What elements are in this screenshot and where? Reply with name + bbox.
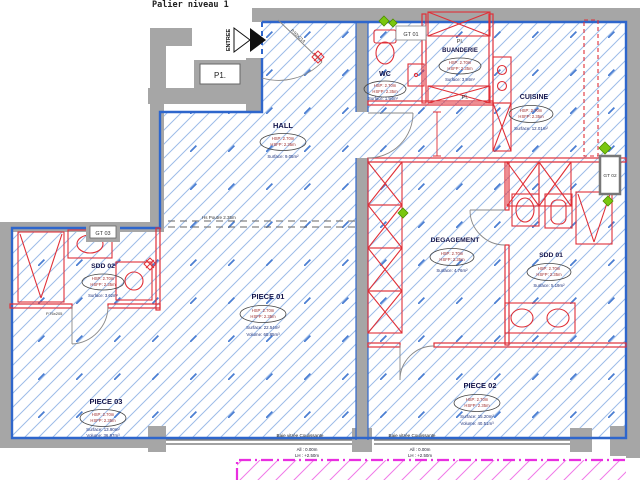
room-name: CUISINE xyxy=(520,94,549,101)
stair-p1-box: P1. xyxy=(200,64,240,84)
window-left-lh: LH : +2.50m xyxy=(295,453,319,458)
floor-plan-sheet: P1. xyxy=(0,0,640,480)
gt01-label: GT 01 xyxy=(403,32,418,38)
room-name: PIECE 03 xyxy=(90,397,123,406)
room-hsfp: HSFP: 2.35m xyxy=(464,403,490,408)
floor-plan-canvas[interactable]: P1. xyxy=(0,0,640,480)
room-surface: Surface: 12.01m² xyxy=(514,126,548,131)
room-surface: Surface: 3.94m² xyxy=(445,77,475,82)
room-surface: Surface: 9.05m² xyxy=(267,154,299,159)
room-name: HALL xyxy=(273,121,293,130)
p1-label: P1. xyxy=(214,71,226,80)
room-hsp: HSP: 2.70m xyxy=(538,266,561,271)
room-surface: Surface: 5.19m² xyxy=(533,283,565,288)
page-title: Palier niveau 1 xyxy=(152,0,229,10)
room-volume: Volume: 36.97m³ xyxy=(86,433,120,438)
room-volume: Volume: 60.85m³ xyxy=(246,332,280,337)
window-left-all: All : 0.00m xyxy=(297,447,318,452)
room-name: DEGAGEMENT xyxy=(431,237,481,244)
room-hsp: HSP: 2.70m xyxy=(252,308,275,313)
room-hsp: HSP: 2.70m xyxy=(92,276,115,281)
balcony xyxy=(237,460,626,480)
pl-label-bottom: Pl. xyxy=(462,95,469,101)
entree-label: ENTREE xyxy=(226,29,232,52)
room-hsfp: HSFP: 2.35m xyxy=(90,418,116,423)
room-hsp: HSP: 2.70m xyxy=(466,397,489,402)
pl-label-top: Pl. xyxy=(457,39,464,45)
room-name: BUANDERIE xyxy=(442,48,478,54)
room-hsp: HSP: 2.70m xyxy=(449,60,472,65)
window-left-label: Baie vitrée Coulissante xyxy=(277,433,324,438)
window-right-all: All : 0.00m xyxy=(410,447,431,452)
room-hsfp: HSFP: 2.35m xyxy=(518,114,544,119)
room-hsfp: HSFP: 2.35m xyxy=(250,314,276,319)
room-name: WC xyxy=(379,71,391,78)
room-name: SDD 01 xyxy=(539,252,563,259)
room-surface: Surface: 4.76m² xyxy=(436,268,468,273)
gt03-label: GT 03 xyxy=(95,231,110,237)
beam-label: Hs Poutre 2.35m xyxy=(202,215,236,220)
room-surface: Surface: 13.90m² xyxy=(86,427,120,432)
window-right-label: Baie vitrée Coulissante xyxy=(389,433,436,438)
room-surface: Surface: 1.94m² xyxy=(368,96,398,101)
room-hsfp: HSFP: 2.35m xyxy=(270,142,296,147)
room-volume: Volume: 40.51m³ xyxy=(460,421,494,426)
room-name: SDD 02 xyxy=(91,263,115,270)
room-hsfp: HSFP: 2.35m xyxy=(536,272,562,277)
gt02-label: GT 02 xyxy=(603,173,617,179)
room-hsfp: HSFP: 2.35m xyxy=(372,89,398,94)
room-name: PIECE 02 xyxy=(464,381,497,390)
sdd02-door-size: P.76x205 xyxy=(46,311,63,316)
window-right-lh: LH : +2.50m xyxy=(408,453,432,458)
room-hsp: HSP: 2.70m xyxy=(374,83,397,88)
room-name: PIECE 01 xyxy=(252,292,285,301)
room-hsp: HSP: 2.70m xyxy=(272,136,295,141)
room-hsfp: HSFP: 2.35m xyxy=(447,66,473,71)
room-surface: Surface: 22.54m² xyxy=(246,325,280,330)
room-hsfp: HSFP: 2.35m xyxy=(90,282,116,287)
room-surface: Surface: 3.62m² xyxy=(88,293,118,298)
room-hsfp: HSFP: 2.35m xyxy=(439,257,465,262)
room-hsp: HSP: 2.70m xyxy=(520,108,543,113)
room-surface: Surface: 15.20m² xyxy=(460,414,494,419)
room-hsp: HSP: 2.70m xyxy=(92,412,115,417)
room-hsp: HSP: 2.70m xyxy=(441,251,464,256)
